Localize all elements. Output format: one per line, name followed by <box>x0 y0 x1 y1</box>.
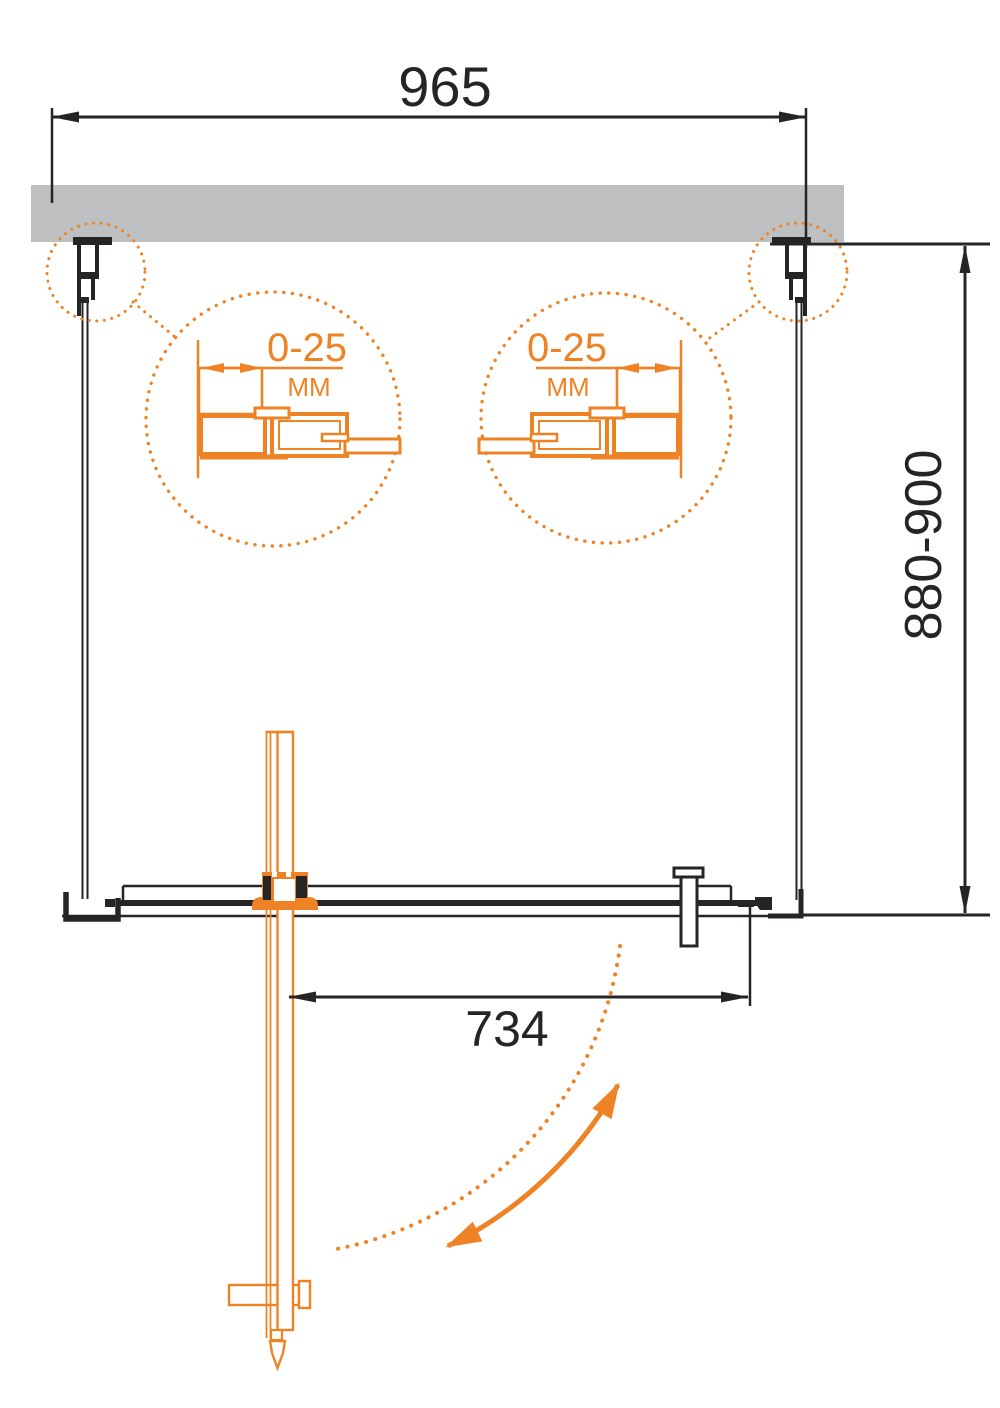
bottom-right-corner-profile <box>738 889 801 916</box>
dimension-depth-label: 880-900 <box>895 450 953 641</box>
dimension-depth: 880-900 <box>770 244 990 915</box>
door-bottom-seal <box>270 1341 285 1368</box>
door-swing-arc <box>331 946 620 1250</box>
right-wall-profile <box>772 237 811 900</box>
detail-left-unit-label: MM <box>287 372 330 402</box>
detail-right-range-label: 0-25 <box>527 326 607 370</box>
door-handle-cap <box>299 1281 310 1308</box>
swing-direction-arrow <box>448 1085 618 1246</box>
swing-path-dotted <box>331 946 620 1250</box>
detail-right-unit-label: MM <box>546 372 589 402</box>
dimension-overall-width-label: 965 <box>398 55 491 118</box>
left-wall-profile <box>73 237 112 899</box>
diagram-canvas: 965 880-900 <box>0 0 1000 1408</box>
shower-door-plan-drawing: 965 880-900 <box>0 0 1000 1408</box>
wall-bar <box>31 185 844 242</box>
magnifier-right: 0-25 MM <box>479 223 847 543</box>
door-glass-profile <box>278 732 294 1330</box>
door-stop-wedge <box>755 897 772 910</box>
fixed-panel-knob <box>674 868 703 946</box>
detail-left-range-label: 0-25 <box>267 326 347 370</box>
pivot-door <box>229 732 318 1368</box>
magnifier-left: 0-25 MM <box>47 223 400 546</box>
pivot-hinge-block <box>252 872 318 910</box>
dimension-door-width-label: 734 <box>465 1001 548 1057</box>
